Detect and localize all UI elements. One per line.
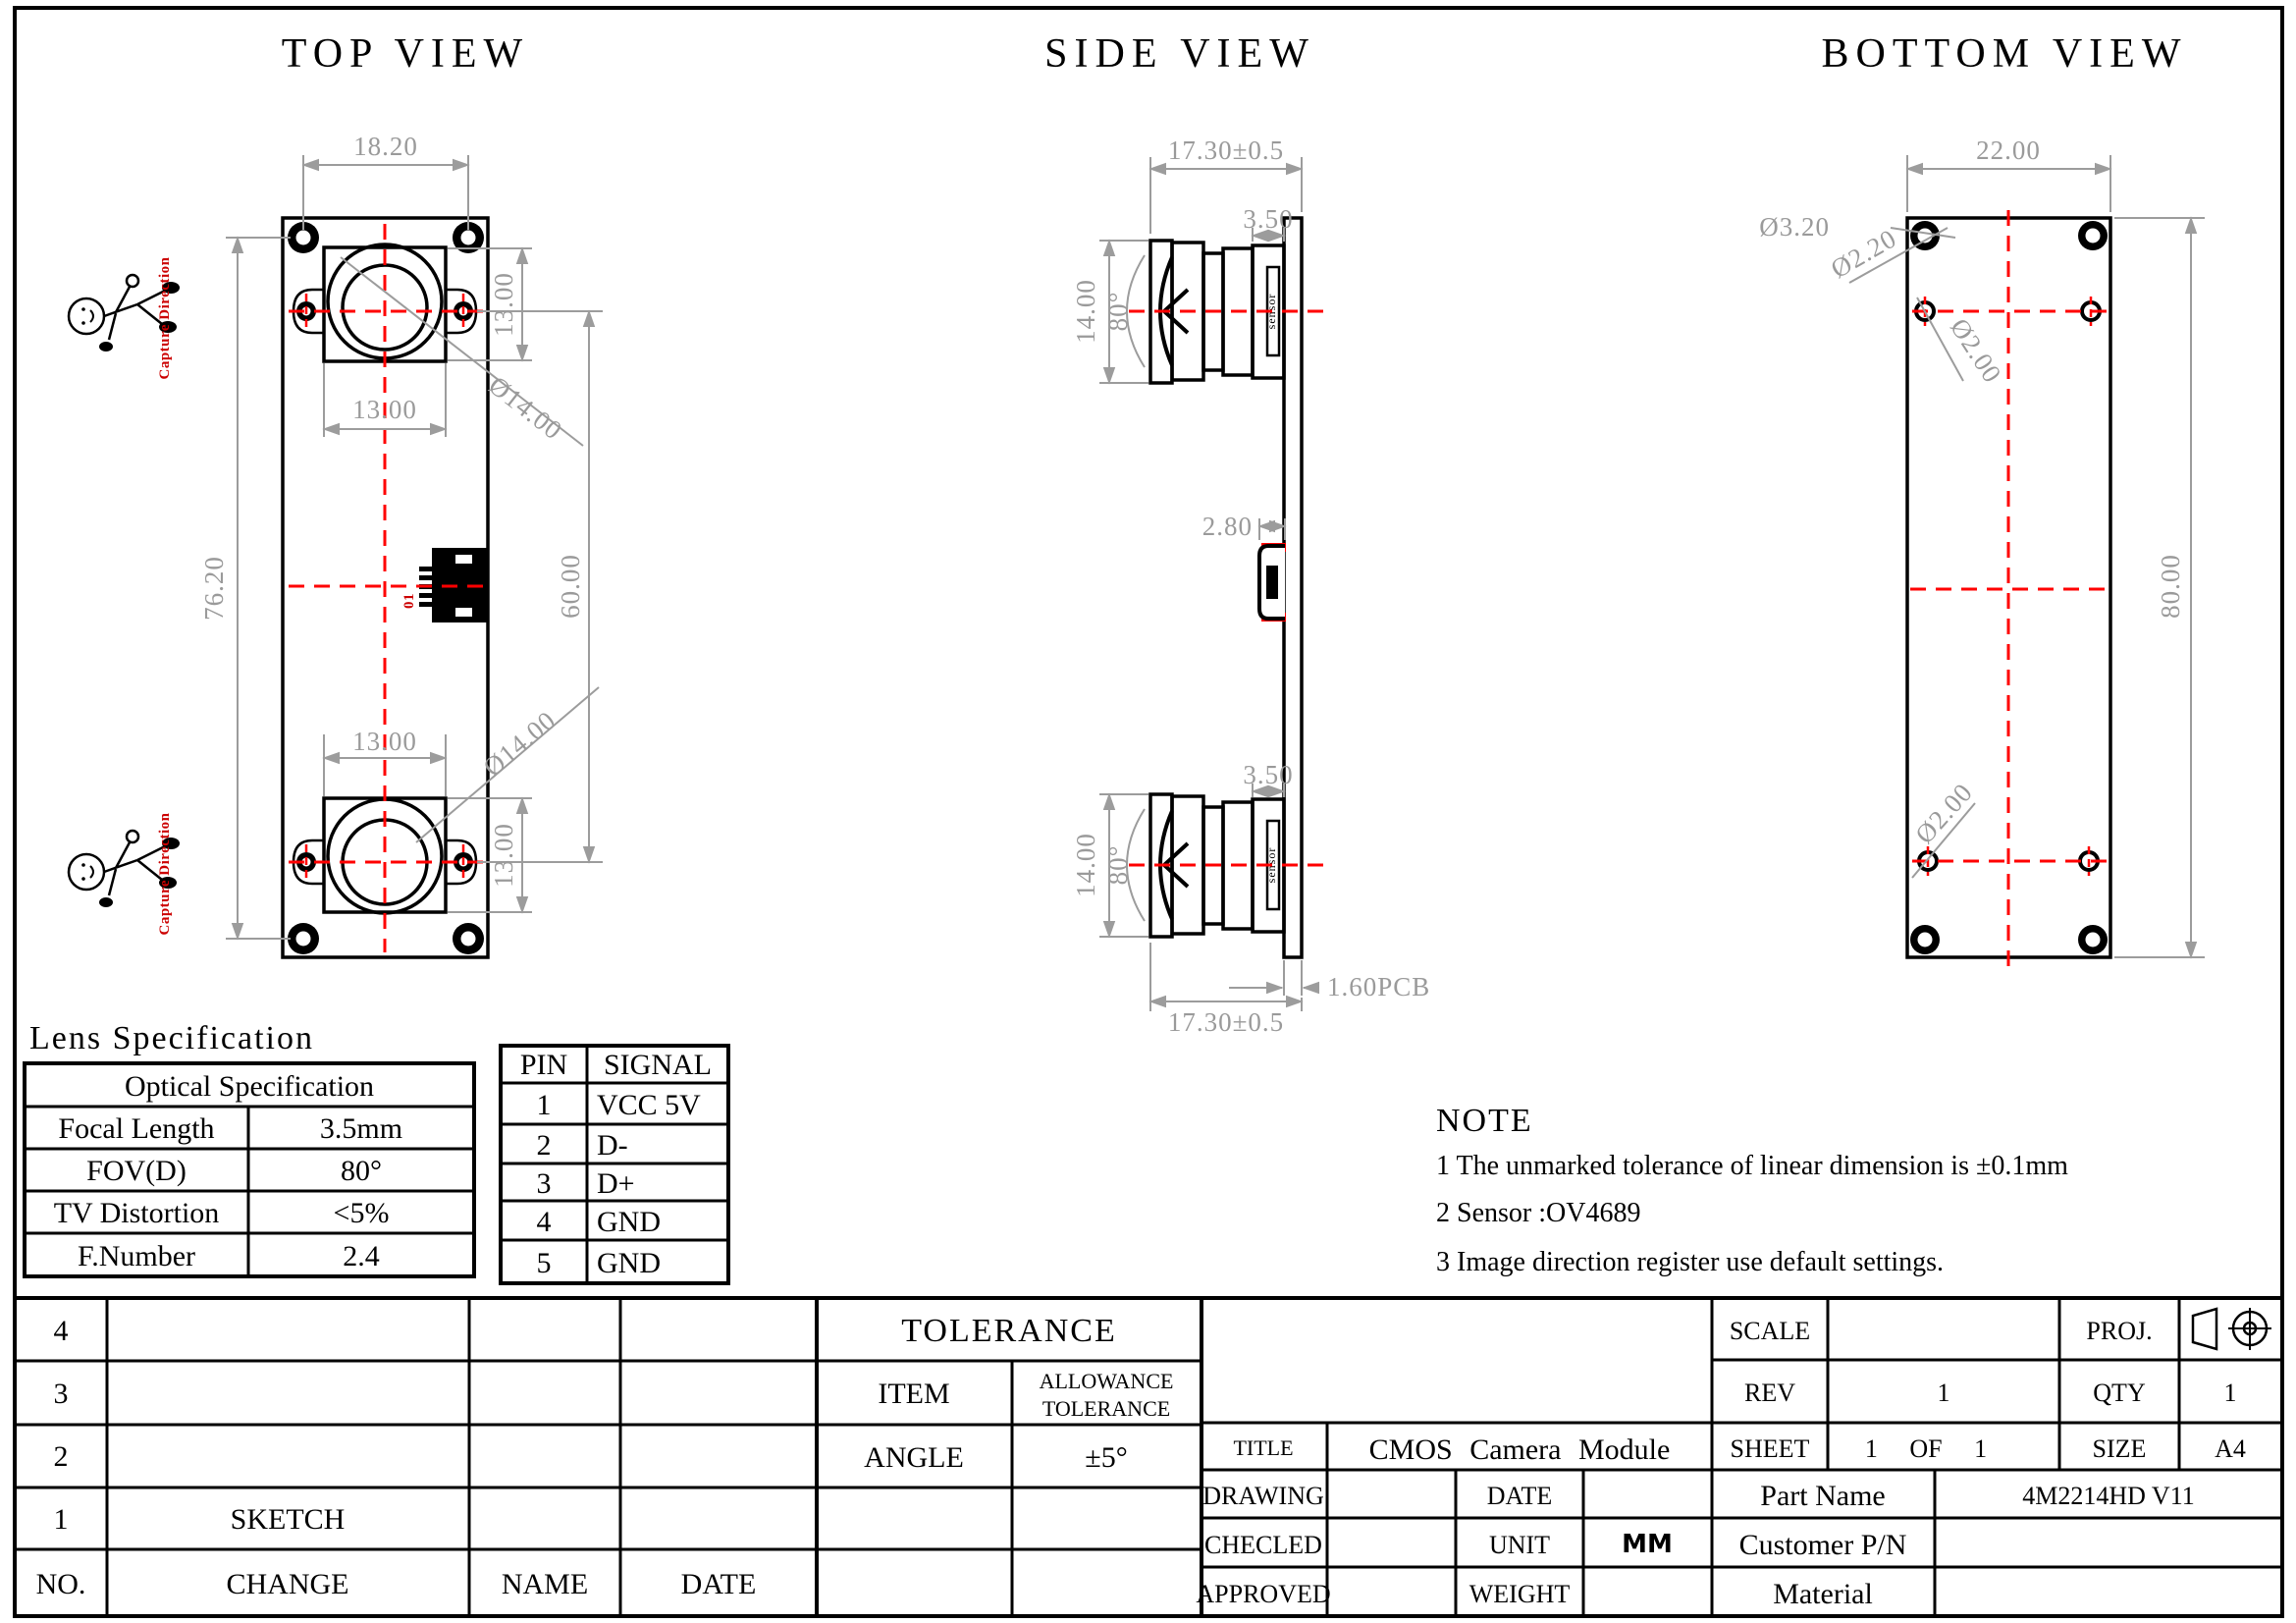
capture-direction-label-top: Capture Direction [157, 256, 173, 379]
note-section: NOTE 1 The unmarked tolerance of linear … [1436, 1103, 2068, 1277]
qty-value: 1 [2224, 1379, 2237, 1407]
dim-depth-top: 17.30±0.5 [1168, 135, 1284, 165]
dim-hole-bottom: Ø2.00 [1909, 778, 1978, 849]
usb-connector-side-view [1259, 543, 1286, 622]
change-label: CHANGE [227, 1568, 349, 1600]
dim-cam1-h-side: 14.00 [1071, 279, 1100, 344]
tolerance-title: TOLERANCE [901, 1313, 1116, 1349]
usb-ref-label: 01 [401, 593, 417, 609]
pin-header: PIN [520, 1049, 567, 1081]
dimensions-side-view: 17.30±0.5 3.50 14.00 2.80 3.50 14.00 [1071, 135, 1430, 1037]
part-name-label: Part Name [1760, 1480, 1885, 1512]
dim-lens2-len: 3.50 [1243, 760, 1293, 789]
note-item-1: 1 The unmarked tolerance of linear dimen… [1436, 1151, 2068, 1181]
note-item-2: 2 Sensor :OV4689 [1436, 1198, 1640, 1228]
rev-label: REV [1744, 1379, 1795, 1407]
lens-spec-r3-value: 2.4 [343, 1240, 380, 1272]
side-view: SIDE VIEW sensor 80° se [1044, 31, 1430, 1037]
material-label: Material [1773, 1578, 1873, 1610]
no-label: NO. [36, 1568, 86, 1600]
dim-depth-bottom: 17.30±0.5 [1168, 1007, 1284, 1037]
screw-holes-bottom [1916, 297, 2100, 876]
dim-hole-pad: Ø3.20 [1759, 212, 1830, 242]
allowance-line2: TOLERANCE [1042, 1396, 1170, 1421]
top-view-title: TOP VIEW [282, 31, 529, 77]
note-item-3: 3 Image direction register use default s… [1436, 1247, 1944, 1277]
projection-symbol-icon [2193, 1308, 2271, 1350]
lens-spec-header: Optical Specification [125, 1070, 374, 1103]
dim-cam1-height: 13.00 [489, 272, 518, 337]
lens-spec-title: Lens Specification [29, 1020, 314, 1056]
capture-direction-label-bottom: Capture Direction [157, 812, 173, 935]
lens-spec-r0-label: Focal Length [58, 1112, 214, 1145]
approved-label: APPROVED [1196, 1580, 1330, 1608]
dim-top-width: 18.20 [353, 132, 418, 161]
signal-1: VCC 5V [597, 1089, 701, 1121]
capture-direction-figure-bottom: Capture Direction [69, 812, 180, 935]
signal-header: SIGNAL [604, 1049, 712, 1081]
centerlines-bottom-view [1910, 210, 2109, 966]
name-label: NAME [502, 1568, 588, 1600]
top-view: TOP VIEW Capture Direction Capture Direc… [69, 31, 603, 957]
bottom-view-title: BOTTOM VIEW [1822, 31, 2188, 77]
dim-cam1-width: 13.00 [352, 395, 417, 424]
dimensions-top-view: 18.20 13.00 13.00 Ø14.00 76.20 60.00 13.… [199, 132, 603, 939]
dim-bottom-width: 22.00 [1976, 135, 2041, 165]
capture-direction-figure-top: Capture Direction [69, 256, 180, 379]
item-label: ITEM [878, 1378, 949, 1410]
lens-spec-r1-label: FOV(D) [86, 1155, 187, 1187]
drawing-label: DRAWING [1202, 1482, 1324, 1510]
dim-cam2-height: 13.00 [489, 823, 518, 888]
unit-value: MM [1622, 1530, 1673, 1559]
signal-3: D+ [597, 1167, 635, 1200]
allowance-line1: ALLOWANCE [1040, 1369, 1174, 1393]
dim-cam2-width: 13.00 [352, 727, 417, 756]
lens-spec-table: Lens Specification Optical Specification… [25, 1020, 474, 1276]
pcb-outline-side-view [1284, 218, 1302, 957]
signal-2: D- [597, 1129, 628, 1162]
dim-usb-height: 2.80 [1202, 512, 1253, 541]
date-label: DATE [681, 1568, 757, 1600]
dim-bottom-height: 80.00 [2156, 554, 2185, 619]
lens-spec-r0-value: 3.5mm [320, 1112, 402, 1145]
rev-row-4: 4 [54, 1315, 69, 1347]
drawing-canvas: TOP VIEW Capture Direction Capture Direc… [0, 0, 2296, 1623]
side-view-title: SIDE VIEW [1044, 31, 1315, 77]
part-name-value: 4M2214HD V11 [2022, 1482, 2195, 1510]
sheet-label: SHEET [1731, 1434, 1810, 1463]
title-label: TITLE [1233, 1435, 1293, 1460]
size-value: A4 [2215, 1434, 2246, 1463]
dimensions-bottom-view: 22.00 Ø3.20 Ø2.20 Ø2.00 Ø2.00 80.00 [1759, 135, 2205, 957]
pin-5: 5 [537, 1247, 552, 1279]
fov-label-2: 80° [1103, 845, 1133, 886]
pin-2: 2 [537, 1129, 552, 1162]
fov-label-1: 80° [1103, 292, 1133, 332]
signal-5: GND [597, 1247, 661, 1279]
pin-table: PIN SIGNAL 1 VCC 5V 2 D- 3 D+ 4 GND 5 GN… [501, 1046, 728, 1283]
dim-lens2-dia: Ø14.00 [478, 705, 561, 782]
lens-spec-r3-label: F.Number [78, 1240, 195, 1272]
size-label: SIZE [2093, 1434, 2147, 1463]
qty-label: QTY [2093, 1379, 2146, 1407]
rev-row-1: 1 [54, 1503, 69, 1536]
title-value: CMOS Camera Module [1369, 1434, 1671, 1466]
sketch-cell: SKETCH [231, 1503, 346, 1536]
checked-label: CHECLED [1204, 1531, 1322, 1559]
sheet-value: 1 OF 1 [1865, 1434, 1987, 1463]
note-title: NOTE [1436, 1103, 1533, 1139]
dim-pcb-thickness: 1.60PCB [1327, 972, 1430, 1001]
scale-label: SCALE [1730, 1317, 1810, 1345]
dim-hole-top: Ø2.00 [1945, 313, 2007, 389]
angle-label: ANGLE [864, 1441, 964, 1474]
lens-spec-r2-label: TV Distortion [54, 1197, 220, 1229]
lens-spec-r2-value: <5% [334, 1197, 390, 1229]
pin-3: 3 [537, 1167, 552, 1200]
rev-value: 1 [1938, 1379, 1950, 1407]
unit-label: UNIT [1489, 1531, 1550, 1559]
dim-cam-spacing: 60.00 [556, 554, 585, 619]
pin-4: 4 [537, 1206, 552, 1238]
dim-lens1-len: 3.50 [1243, 204, 1293, 234]
customer-pn-label: Customer P/N [1739, 1529, 1907, 1561]
dim-cam2-h-side: 14.00 [1071, 833, 1100, 897]
proj-label: PROJ. [2086, 1317, 2152, 1345]
lens-spec-r1-value: 80° [341, 1155, 382, 1187]
date2-label: DATE [1487, 1482, 1552, 1510]
dim-lens1-dia: Ø14.00 [483, 370, 567, 446]
weight-label: WEIGHT [1469, 1580, 1571, 1608]
rev-row-3: 3 [54, 1378, 69, 1410]
angle-value: ±5° [1085, 1441, 1127, 1474]
bottom-view: BOTTOM VIEW 22.00 [1759, 31, 2205, 966]
pin-1: 1 [537, 1089, 552, 1121]
drawing-sheet: TOP VIEW Capture Direction Capture Direc… [0, 0, 2296, 1623]
signal-4: GND [597, 1206, 661, 1238]
title-block: 4 3 2 1 SKETCH NO. CHANGE NAME DATE TOLE… [15, 1298, 2282, 1616]
rev-row-2: 2 [54, 1440, 69, 1473]
dim-board-height: 76.20 [199, 556, 229, 621]
